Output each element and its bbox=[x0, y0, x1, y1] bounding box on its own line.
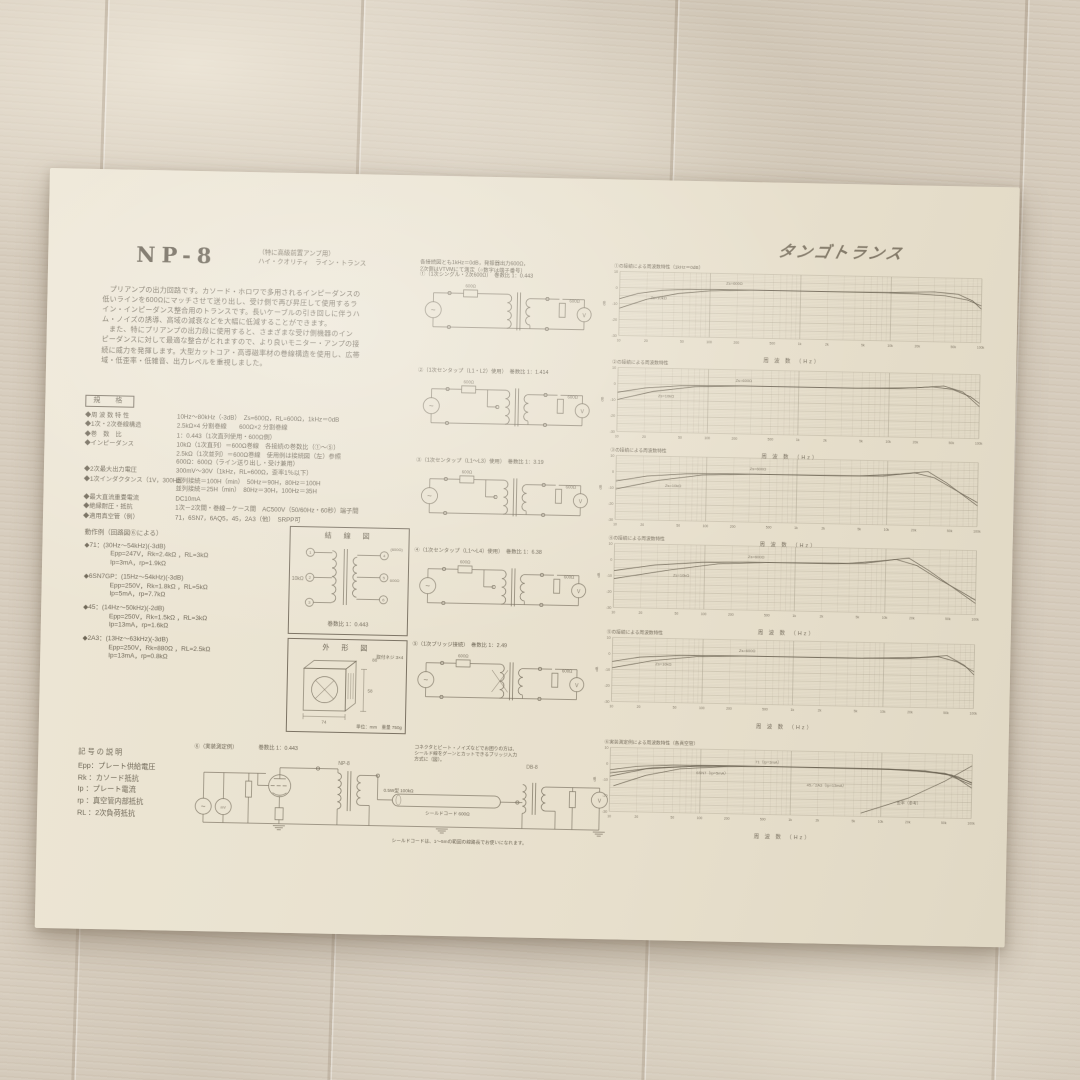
spec-label: ◆2次最大出力電圧 bbox=[84, 466, 176, 476]
circuit-schematic: ~600Ω600ΩV bbox=[417, 374, 606, 436]
svg-text:600Ω: 600Ω bbox=[458, 653, 469, 658]
svg-text:100: 100 bbox=[706, 340, 712, 344]
svg-text:200: 200 bbox=[730, 525, 736, 529]
legend-list: Epp：プレート供給電圧Rk ：カソード抵抗Ip ：プレート電流rp ：真空管内… bbox=[77, 759, 156, 820]
spec-value: 10kΩ（1次直列）＝600Ω巻線 各接続の巻数比（①～⑤）2.5kΩ（1次並列… bbox=[176, 442, 424, 472]
svg-text:1k: 1k bbox=[792, 614, 796, 618]
chart-grid: -30-20-100101020501002005001k2k5k10k20k5… bbox=[593, 541, 982, 627]
svg-text:50: 50 bbox=[680, 340, 684, 344]
svg-text:100k: 100k bbox=[975, 442, 983, 446]
svg-text:50: 50 bbox=[675, 612, 679, 616]
svg-text:-20: -20 bbox=[612, 318, 617, 322]
svg-text:0: 0 bbox=[610, 558, 612, 562]
chart-grid: -30-20-100101020501002005001k2k5k10k20k5… bbox=[589, 745, 978, 831]
legend-item: Epp：プレート供給電圧 bbox=[78, 759, 156, 772]
svg-text:10: 10 bbox=[610, 454, 614, 458]
svg-text:20: 20 bbox=[637, 705, 641, 709]
svg-text:dB: dB bbox=[594, 666, 599, 671]
svg-text:20: 20 bbox=[642, 435, 646, 439]
connection-diagram-box: 結 線 図 12345610kΩ(600Ω)600Ω 巻数比 1：0.443 bbox=[288, 526, 410, 636]
svg-text:V: V bbox=[577, 589, 581, 595]
svg-text:500: 500 bbox=[764, 613, 770, 617]
svg-text:-30: -30 bbox=[608, 518, 613, 522]
outline-note-units: 単位：mm 重量 750g bbox=[356, 724, 402, 731]
svg-text:Zs=600Ω: Zs=600Ω bbox=[748, 554, 765, 559]
svg-text:50k: 50k bbox=[943, 711, 949, 715]
svg-text:-30: -30 bbox=[602, 810, 607, 814]
svg-text:50k: 50k bbox=[945, 617, 951, 621]
circuit-block: ②（1次センタップ（L1・L2）使用） 巻数比 1：1.414~600Ω600Ω… bbox=[417, 367, 608, 441]
svg-text:600Ω: 600Ω bbox=[460, 559, 471, 564]
svg-text:10k: 10k bbox=[887, 344, 893, 348]
spec-label: ◆適用真空管（例） bbox=[83, 513, 175, 523]
svg-text:-20: -20 bbox=[602, 794, 607, 798]
svg-text:DB-8: DB-8 bbox=[526, 765, 538, 771]
circuit-block: ①（1次シングル・2次600Ω） 巻数比 1：0.443~600Ω600ΩV bbox=[419, 271, 610, 345]
svg-text:V: V bbox=[580, 409, 584, 415]
spec-title: 規 格 bbox=[85, 395, 134, 408]
circuit-schematic: ~600Ω600ΩV bbox=[413, 554, 602, 616]
svg-text:V: V bbox=[579, 499, 583, 505]
svg-text:10: 10 bbox=[614, 270, 618, 274]
svg-text:-20: -20 bbox=[608, 502, 613, 506]
connection-diagram: 12345610kΩ(600Ω)600Ω bbox=[289, 540, 406, 616]
svg-text:-30: -30 bbox=[606, 606, 611, 610]
svg-text:20k: 20k bbox=[907, 710, 913, 714]
svg-text:dB: dB bbox=[598, 484, 603, 489]
svg-text:100: 100 bbox=[697, 816, 703, 820]
svg-text:0: 0 bbox=[616, 286, 618, 290]
svg-text:20k: 20k bbox=[909, 616, 915, 620]
svg-text:100k: 100k bbox=[971, 618, 979, 622]
svg-text:200: 200 bbox=[724, 817, 730, 821]
svg-text:5k: 5k bbox=[856, 615, 860, 619]
svg-text:2k: 2k bbox=[815, 818, 819, 822]
outline-note-screws: 取付ネジ 3×4 bbox=[376, 655, 403, 662]
svg-text:1: 1 bbox=[309, 550, 312, 555]
svg-text:100k: 100k bbox=[970, 712, 978, 716]
datasheet-paper: タンゴトランス NP-8 （特に高級前置アンプ用） ハイ・クオリティ ライン・ト… bbox=[35, 168, 1020, 947]
svg-text:50: 50 bbox=[673, 706, 677, 710]
svg-text:1k: 1k bbox=[790, 708, 794, 712]
outline-drawing-box: 外 形 図 745888 取付ネジ 3×4 単位：mm 重量 750g bbox=[286, 638, 408, 734]
svg-text:dB: dB bbox=[596, 572, 601, 577]
svg-text:20: 20 bbox=[639, 611, 643, 615]
svg-text:dB: dB bbox=[601, 300, 606, 305]
svg-text:200: 200 bbox=[728, 613, 734, 617]
svg-text:20: 20 bbox=[634, 815, 638, 819]
svg-text:Zs=600Ω: Zs=600Ω bbox=[739, 648, 756, 653]
svg-text:-10: -10 bbox=[610, 398, 615, 402]
svg-text:0: 0 bbox=[606, 762, 608, 766]
svg-text:100k: 100k bbox=[967, 822, 975, 826]
svg-text:100k: 100k bbox=[977, 346, 985, 350]
svg-text:10k: 10k bbox=[882, 616, 888, 620]
svg-text:500: 500 bbox=[766, 525, 772, 529]
svg-text:20k: 20k bbox=[905, 820, 911, 824]
svg-text:500: 500 bbox=[768, 437, 774, 441]
circuit-schematic: ~600Ω600ΩV bbox=[411, 648, 600, 710]
svg-text:Zs=10kΩ: Zs=10kΩ bbox=[655, 661, 671, 666]
svg-text:5k: 5k bbox=[851, 819, 855, 823]
datasheet-content: タンゴトランス NP-8 （特に高級前置アンプ用） ハイ・クオリティ ライン・ト… bbox=[35, 168, 1020, 947]
svg-text:50: 50 bbox=[670, 816, 674, 820]
circuit-schematic: ~600Ω600ΩV bbox=[415, 464, 604, 526]
svg-text:100: 100 bbox=[703, 524, 709, 528]
svg-text:NP-8: NP-8 bbox=[338, 761, 350, 767]
svg-text:200: 200 bbox=[732, 437, 738, 441]
svg-text:~: ~ bbox=[427, 492, 432, 501]
chart-panel: ⑥実装測定例による周波数特性（各真空管）-30-20-1001010205010… bbox=[589, 739, 979, 845]
svg-text:V: V bbox=[575, 683, 579, 689]
measurement-circuit: ⑥（実装測定例） 巻数比 1：0.443 ~mVNP-8DB-8V コネクタとビ… bbox=[186, 742, 636, 863]
measurement-circuit-resistor-note: 0.5W型 100kΩ bbox=[384, 788, 414, 795]
chart-panel: ⑤の接続による周波数特性-30-20-100101020501002005001… bbox=[591, 629, 981, 735]
svg-text:1k: 1k bbox=[796, 438, 800, 442]
svg-text:-10: -10 bbox=[608, 486, 613, 490]
connection-turns-ratio: 巻数比 1：0.443 bbox=[289, 619, 407, 629]
svg-text:-30: -30 bbox=[612, 334, 617, 338]
svg-text:Zs=10kΩ: Zs=10kΩ bbox=[650, 295, 666, 300]
svg-text:10: 10 bbox=[615, 434, 619, 438]
svg-text:5: 5 bbox=[383, 575, 386, 580]
svg-text:50k: 50k bbox=[951, 345, 957, 349]
svg-text:100k: 100k bbox=[973, 530, 981, 534]
svg-text:Zs=10kΩ: Zs=10kΩ bbox=[658, 393, 674, 398]
svg-text:dB: dB bbox=[599, 396, 604, 401]
measurement-circuit-notes: コネクタとビート・ノイズなどでお困りの方は、シールド線をグーンとカットできるブリ… bbox=[414, 744, 594, 766]
circuit-block: ⑤（1次ブリッジ接続） 巻数比 1：2.49~600Ω600ΩV bbox=[411, 641, 602, 715]
spec-rows: ◆周 波 数 特 性10Hz～80kHz（-3dB） Zs=600Ω，RL=60… bbox=[83, 411, 425, 527]
svg-text:Zs=600Ω: Zs=600Ω bbox=[726, 281, 743, 286]
svg-text:6SN7（Ip=5mA）: 6SN7（Ip=5mA） bbox=[696, 770, 728, 776]
svg-text:4: 4 bbox=[383, 553, 386, 558]
svg-text:dB: dB bbox=[592, 776, 597, 781]
svg-text:-30: -30 bbox=[610, 430, 615, 434]
circuit-block: ③（1次センタップ（L1～L3）使用） 巻数比 1：3.19~600Ω600ΩV bbox=[415, 457, 606, 531]
svg-text:50: 50 bbox=[678, 436, 682, 440]
chart-grid: -30-20-100101020501002005001k2k5k10k20k5… bbox=[591, 635, 980, 721]
svg-text:2k: 2k bbox=[818, 709, 822, 713]
svg-text:-30: -30 bbox=[604, 700, 609, 704]
spec-label: ◆インピーダンス bbox=[84, 440, 176, 466]
svg-text:20: 20 bbox=[644, 339, 648, 343]
svg-text:V: V bbox=[582, 313, 586, 319]
chart-panel: ①の接続による周波数特性（1kHz＝0dB）-30-20-10010102050… bbox=[598, 263, 988, 369]
svg-text:1k: 1k bbox=[788, 818, 792, 822]
svg-text:0: 0 bbox=[612, 470, 614, 474]
svg-text:50k: 50k bbox=[941, 821, 947, 825]
svg-text:-10: -10 bbox=[612, 302, 617, 306]
svg-text:5k: 5k bbox=[857, 527, 861, 531]
photo-stage: タンゴトランス NP-8 （特に高級前置アンプ用） ハイ・クオリティ ライン・ト… bbox=[0, 0, 1080, 1080]
spec-label: ◆周 波 数 特 性 bbox=[85, 411, 177, 421]
spec-table: 規 格 ◆周 波 数 特 性10Hz～80kHz（-3dB） Zs=600Ω，R… bbox=[83, 395, 425, 528]
svg-text:~: ~ bbox=[201, 802, 206, 811]
svg-text:20k: 20k bbox=[915, 344, 921, 348]
circuit-block: ④（1次センタップ（L1～L4）使用） 巻数比 1：6.38~600Ω600ΩV bbox=[413, 547, 604, 621]
spec-label: ◆1次・2次巻線構造 bbox=[85, 421, 177, 431]
svg-text:58: 58 bbox=[368, 688, 374, 693]
svg-text:10k: 10k bbox=[878, 820, 884, 824]
svg-text:10: 10 bbox=[609, 542, 613, 546]
svg-text:2k: 2k bbox=[825, 343, 829, 347]
svg-text:10: 10 bbox=[613, 522, 617, 526]
chart-grid: -30-20-100101020501002005001k2k5k10k20k5… bbox=[599, 269, 988, 355]
symbol-legend: 記号の説明 Epp：プレート供給電圧Rk ：カソード抵抗Ip ：プレート電流rp… bbox=[77, 746, 156, 820]
brand-logo: タンゴトランス bbox=[776, 238, 907, 264]
svg-text:500: 500 bbox=[760, 817, 766, 821]
chart-grid: -30-20-100101020501002005001k2k5k10k20k5… bbox=[595, 453, 984, 539]
chart-x-axis-label: 周 波 数 （Hz） bbox=[589, 829, 977, 845]
spec-label: ◆1次インダクタンス（1V，300Hz） bbox=[84, 476, 176, 494]
svg-text:5k: 5k bbox=[861, 343, 865, 347]
svg-text:10: 10 bbox=[607, 814, 611, 818]
chart-panel: ④の接続による周波数特性-30-20-100101020501002005001… bbox=[593, 535, 983, 641]
svg-text:~: ~ bbox=[425, 582, 430, 591]
chart-x-axis-label: 周 波 数 （Hz） bbox=[591, 719, 979, 735]
svg-text:1k: 1k bbox=[798, 342, 802, 346]
svg-text:74: 74 bbox=[321, 720, 327, 725]
svg-text:-10: -10 bbox=[605, 668, 610, 672]
measurement-circuit-cable-note: シールドコード 600Ω bbox=[425, 811, 470, 818]
svg-text:~: ~ bbox=[429, 402, 434, 411]
spec-label: ◆絶縁耐圧・抵抗 bbox=[83, 503, 175, 513]
svg-text:~: ~ bbox=[431, 306, 436, 315]
svg-text:600Ω: 600Ω bbox=[390, 578, 400, 583]
svg-text:20k: 20k bbox=[913, 440, 919, 444]
svg-text:10kΩ: 10kΩ bbox=[292, 576, 304, 582]
model-subtitle-line2: ハイ・クオリティ ライン・トランス bbox=[258, 258, 366, 269]
svg-text:-10: -10 bbox=[607, 574, 612, 578]
svg-text:2: 2 bbox=[309, 575, 312, 580]
svg-text:Zs=600Ω: Zs=600Ω bbox=[736, 378, 753, 383]
svg-text:10k: 10k bbox=[884, 528, 890, 532]
svg-text:20k: 20k bbox=[911, 528, 917, 532]
svg-text:2k: 2k bbox=[821, 527, 825, 531]
svg-text:(600Ω): (600Ω) bbox=[390, 547, 403, 552]
legend-item: RL ：2次負荷抵抗 bbox=[77, 807, 155, 820]
model-title: NP-8 bbox=[136, 242, 218, 269]
svg-text:10: 10 bbox=[607, 636, 611, 640]
svg-text:Zs=600Ω: Zs=600Ω bbox=[750, 466, 767, 471]
svg-text:Zs=10kΩ: Zs=10kΩ bbox=[673, 573, 689, 578]
svg-text:5k: 5k bbox=[859, 439, 863, 443]
svg-text:71（Ip=3mA）: 71（Ip=3mA） bbox=[755, 759, 781, 765]
svg-text:200: 200 bbox=[733, 341, 739, 345]
svg-text:-20: -20 bbox=[606, 590, 611, 594]
svg-text:10: 10 bbox=[604, 746, 608, 750]
svg-text:-10: -10 bbox=[603, 778, 608, 782]
svg-text:100: 100 bbox=[699, 706, 705, 710]
legend-title: 記号の説明 bbox=[78, 746, 156, 759]
svg-text:10: 10 bbox=[617, 338, 621, 342]
svg-text:2k: 2k bbox=[820, 615, 824, 619]
svg-text:50k: 50k bbox=[947, 529, 953, 533]
svg-text:45／2A3（Ip=13mA）: 45／2A3（Ip=13mA） bbox=[807, 783, 847, 789]
svg-text:Zs=10kΩ: Zs=10kΩ bbox=[665, 483, 681, 488]
svg-text:100: 100 bbox=[701, 612, 707, 616]
svg-text:5k: 5k bbox=[854, 709, 858, 713]
model-subtitle: （特に高級前置アンプ用） ハイ・クオリティ ライン・トランス bbox=[258, 249, 366, 268]
svg-text:600Ω: 600Ω bbox=[464, 379, 475, 384]
svg-text:500: 500 bbox=[770, 341, 776, 345]
svg-text:3: 3 bbox=[308, 600, 311, 605]
svg-text:2k: 2k bbox=[823, 439, 827, 443]
chart-grid: -30-20-100101020501002005001k2k5k10k20k5… bbox=[597, 365, 986, 451]
svg-text:6: 6 bbox=[382, 597, 385, 602]
svg-text:600Ω: 600Ω bbox=[465, 283, 476, 288]
svg-text:-20: -20 bbox=[610, 414, 615, 418]
svg-text:500: 500 bbox=[762, 707, 768, 711]
svg-text:mV: mV bbox=[220, 806, 226, 810]
svg-text:10k: 10k bbox=[885, 440, 891, 444]
circuit-schematic: ~600Ω600ΩV bbox=[419, 278, 608, 340]
svg-text:50k: 50k bbox=[949, 441, 955, 445]
svg-text:10: 10 bbox=[612, 366, 616, 370]
svg-text:20: 20 bbox=[640, 523, 644, 527]
svg-text:10: 10 bbox=[609, 704, 613, 708]
outline-drawing: 745888 bbox=[287, 652, 404, 728]
svg-text:10: 10 bbox=[611, 610, 615, 614]
svg-text:~: ~ bbox=[423, 676, 428, 685]
svg-text:600Ω: 600Ω bbox=[462, 469, 473, 474]
svg-text:10k: 10k bbox=[880, 710, 886, 714]
svg-text:歪率（参考）: 歪率（参考） bbox=[897, 799, 921, 805]
svg-text:0: 0 bbox=[608, 652, 610, 656]
svg-text:100: 100 bbox=[704, 436, 710, 440]
svg-text:-20: -20 bbox=[604, 684, 609, 688]
svg-text:50: 50 bbox=[676, 524, 680, 528]
intro-paragraph: プリアンプの出力回路です。カソード・ホロワで多用されるインピーダンスの低いライン… bbox=[101, 285, 413, 372]
svg-text:0: 0 bbox=[614, 382, 616, 386]
svg-text:200: 200 bbox=[726, 707, 732, 711]
svg-text:1k: 1k bbox=[794, 526, 798, 530]
